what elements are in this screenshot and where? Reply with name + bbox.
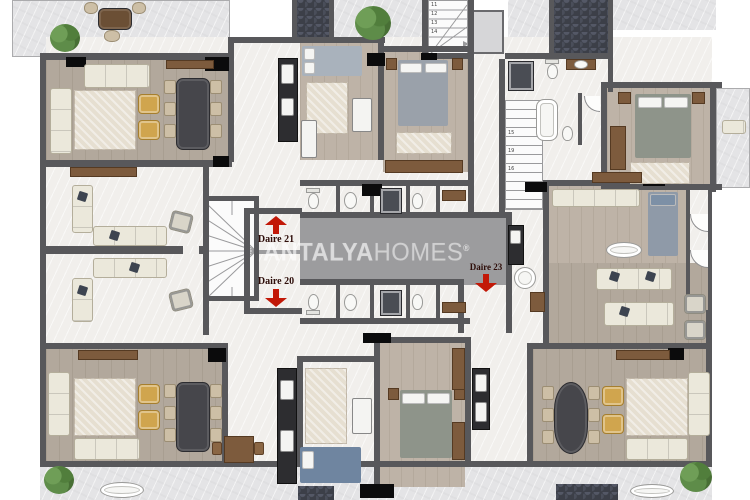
dining-chair (542, 430, 554, 444)
rug (74, 378, 136, 436)
wall-segment (578, 93, 582, 145)
roof-strip-bottom-left (298, 486, 334, 500)
rug (626, 378, 688, 436)
dining-chair (164, 102, 176, 116)
outdoor-chair (132, 2, 146, 14)
wall-segment (297, 356, 380, 362)
watermark: ANTALYAHOMES® (263, 235, 470, 265)
toilet (547, 64, 558, 79)
stair-number: 19 (508, 149, 514, 154)
nightstand (452, 58, 463, 70)
toilet (562, 126, 573, 141)
wall-segment (499, 59, 505, 212)
nightstand (692, 92, 705, 104)
dining-chair (210, 384, 222, 398)
sink (344, 294, 357, 311)
watermark-brand-light: HOMES (374, 238, 463, 266)
shower (380, 290, 402, 316)
armchair (138, 94, 160, 114)
kitchen-sink (280, 380, 294, 400)
balcony-bench (722, 120, 746, 134)
plant (44, 466, 74, 494)
tv-cabinet (70, 167, 137, 177)
toilet (412, 294, 423, 310)
dining-chair (542, 408, 554, 422)
bathroom-vanity (442, 302, 466, 313)
wall-segment (203, 165, 209, 335)
bed-pillow (427, 393, 450, 404)
stair-number: 15 (508, 131, 514, 136)
bathroom-vanity (442, 190, 466, 201)
bed-pillow (304, 62, 315, 74)
dining-chair (164, 406, 176, 420)
dining-chair (164, 124, 176, 138)
wardrobe (301, 120, 317, 158)
stair-number: 16 (508, 167, 514, 172)
wall-segment (336, 186, 340, 218)
nightstand (386, 58, 397, 70)
outdoor-table (100, 482, 144, 498)
toilet (308, 193, 319, 209)
dining-chair (254, 442, 264, 455)
entry-arrow-up-icon (265, 216, 287, 234)
wall-segment (601, 82, 722, 88)
bathtub (536, 99, 558, 141)
entry-arrow-down-icon (265, 289, 287, 307)
dining-table (176, 78, 210, 150)
desk (610, 126, 626, 170)
sofa (84, 64, 150, 88)
stove (280, 430, 294, 452)
nightstand (618, 92, 631, 104)
kitchen-table (224, 436, 254, 463)
plant (50, 24, 80, 52)
roof-strip-bottom-right (556, 484, 618, 500)
stove (281, 64, 294, 84)
stair-number: 14 (431, 30, 437, 35)
daybed (552, 189, 640, 207)
kitchen-sink (281, 98, 294, 116)
bed-pillow (664, 97, 688, 108)
wardrobe (452, 348, 465, 390)
stove (475, 402, 487, 422)
wall-outer-right (710, 82, 716, 192)
bathroom-vanity (530, 292, 545, 312)
outdoor-chair (104, 30, 120, 42)
kitchen-sink (510, 230, 521, 244)
unit-label-daire-20: Daire 20 (248, 276, 304, 310)
kitchen-sink (475, 374, 487, 392)
bed-pillow (650, 194, 676, 206)
column-block (525, 182, 547, 192)
shower (380, 188, 402, 214)
wall-segment (228, 37, 385, 43)
wall-segment (40, 343, 226, 349)
dining-chair (212, 442, 222, 455)
rug (74, 90, 136, 150)
tv-cabinet (166, 60, 214, 69)
dining-chair (588, 408, 600, 422)
sofa (74, 438, 140, 460)
sink (574, 60, 588, 69)
elevator-shaft (470, 10, 504, 54)
rug (396, 132, 452, 154)
entry-arrow-down-icon (475, 274, 497, 292)
wall-segment (380, 46, 472, 52)
outdoor-chair (84, 2, 98, 14)
dining-chair (210, 124, 222, 138)
balcony-top-right (716, 88, 750, 188)
dining-chair (210, 80, 222, 94)
wall-segment (465, 337, 471, 467)
unit-label-daire-23: Daire 23 (462, 262, 510, 300)
dining-table (176, 382, 210, 452)
dresser (352, 398, 372, 434)
dining-chair (588, 430, 600, 444)
wall-segment (527, 343, 533, 467)
bed-pillow (425, 63, 447, 73)
sofa (604, 302, 674, 326)
registered-mark: ® (463, 243, 470, 253)
column-block (208, 348, 226, 362)
armchair (138, 384, 160, 404)
column-block (213, 156, 229, 167)
wardrobe (592, 172, 642, 183)
plant (355, 6, 391, 40)
dining-chair (542, 386, 554, 400)
wall-segment (436, 285, 440, 318)
wall-segment (608, 0, 613, 92)
sofa (48, 372, 70, 436)
bed-pillow (302, 451, 314, 469)
sofa (50, 88, 72, 154)
nightstand (388, 388, 399, 400)
stair-number: 11 (431, 3, 437, 8)
column-block (66, 57, 86, 67)
dining-chair (210, 102, 222, 116)
wall-outer-left (40, 53, 46, 467)
bathroom-sink-oval (514, 267, 536, 289)
tv-cabinet (616, 350, 670, 360)
bed-pillow (304, 48, 315, 60)
dining-table-oval (554, 382, 588, 454)
toilet-tank (306, 310, 320, 315)
wall-segment (549, 0, 554, 57)
column-block (360, 484, 394, 498)
armchair (602, 414, 624, 434)
dining-chair (210, 406, 222, 420)
roof-shaft-right (553, 0, 610, 57)
column-block (668, 348, 684, 360)
rug (305, 368, 347, 444)
bed-pillow (402, 393, 425, 404)
unit-label-text: Daire 20 (248, 276, 304, 287)
armchair (684, 294, 706, 314)
stair-number: 13 (431, 21, 437, 26)
sofa (688, 372, 710, 436)
wall-segment (370, 285, 374, 318)
dining-chair (164, 428, 176, 442)
dining-chair (164, 80, 176, 94)
wall-corridor-top (300, 212, 510, 218)
wall-segment (336, 285, 340, 318)
plant (680, 462, 712, 492)
armchair (138, 410, 160, 430)
wall-segment (40, 246, 205, 254)
wardrobe (452, 422, 465, 460)
wall-segment (203, 196, 259, 201)
wardrobe (385, 160, 463, 173)
wall-segment (708, 190, 712, 310)
armchair (138, 120, 160, 140)
wall-segment (543, 180, 549, 343)
wall-segment (406, 186, 410, 218)
sink (344, 192, 357, 209)
desk (352, 98, 372, 132)
toilet (308, 294, 319, 310)
outdoor-table (630, 484, 674, 498)
sofa (93, 226, 167, 246)
sofa (72, 278, 93, 322)
floor-plan: 11 12 13 14 16 15 19 16 (0, 0, 750, 500)
wall-segment (527, 343, 712, 349)
wall-segment (436, 186, 440, 218)
sofa (596, 268, 672, 290)
wall-segment (300, 180, 470, 186)
armchair (684, 320, 706, 340)
watermark-brand-bold: ANTALYA (263, 238, 374, 266)
vanity-table (606, 242, 642, 258)
door-opening (183, 246, 199, 254)
column-block (367, 53, 385, 66)
dining-chair (164, 384, 176, 398)
wall-outer-bottom (40, 461, 712, 467)
dining-chair (588, 386, 600, 400)
toilet (412, 193, 423, 209)
terrace-top-far-right (612, 0, 716, 30)
sofa (626, 438, 688, 460)
tv-cabinet (78, 350, 138, 360)
bed-pillow (638, 97, 662, 108)
column-block (362, 184, 382, 196)
wall-segment (300, 318, 470, 324)
shower (508, 61, 534, 91)
dining-chair (210, 428, 222, 442)
wall-segment (406, 285, 410, 318)
bed-pillow (400, 63, 422, 73)
armchair (602, 386, 624, 406)
outdoor-table (98, 8, 132, 30)
column-block (363, 333, 391, 343)
stair-number: 12 (431, 12, 437, 17)
